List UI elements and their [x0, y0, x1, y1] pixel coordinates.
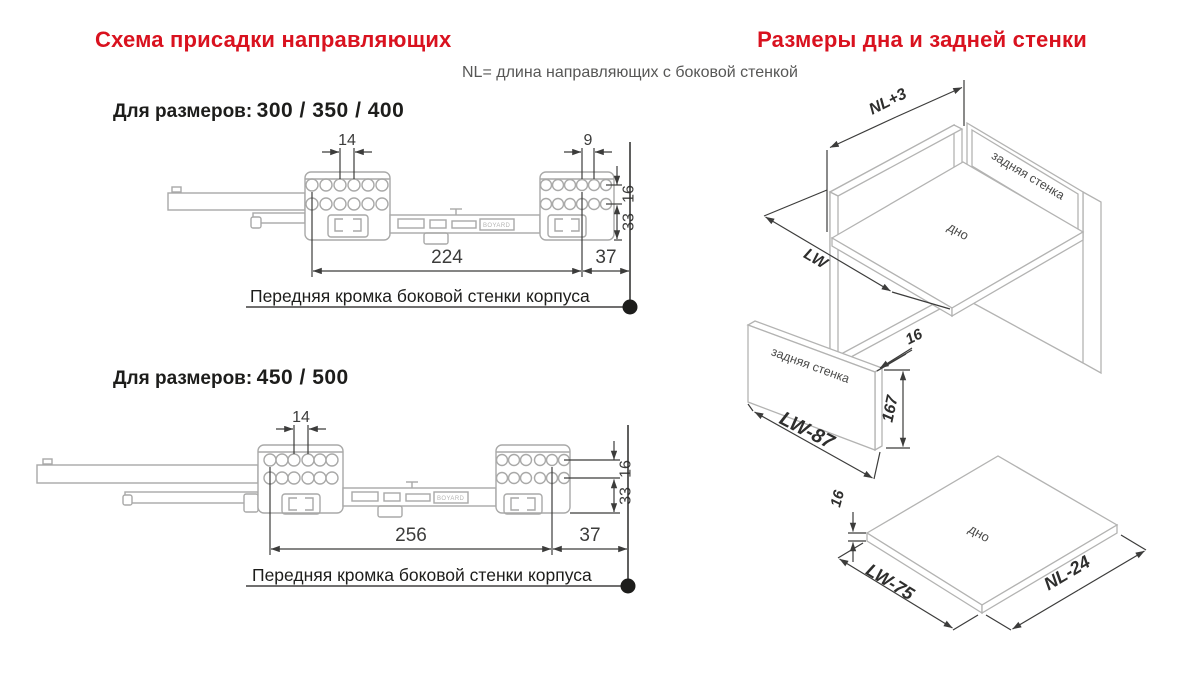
reference-dot — [623, 300, 638, 315]
front-edge-label: Передняя кромка боковой стенки корпуса — [250, 286, 590, 306]
slide-drawing-300-350-400: BOYARD — [168, 172, 614, 244]
slide-drawing-450-500: BOYARD — [37, 445, 570, 517]
dim-33: 33 — [618, 487, 635, 505]
mount-bracket-right — [496, 445, 570, 514]
dim-37: 37 — [579, 525, 600, 546]
dim-16: 16 — [618, 460, 635, 478]
rail-center-mechanism: BOYARD — [390, 209, 540, 244]
dim-9: 9 — [584, 132, 593, 149]
brand-mark: BOYARD — [437, 496, 465, 502]
rail-bar — [168, 193, 305, 210]
mount-bracket-left — [258, 445, 343, 514]
dim-14: 14 — [292, 409, 310, 426]
reference-dot — [621, 579, 636, 594]
heading-bottom-backwall-sizes: Размеры дна и задней стенки — [692, 27, 1152, 53]
rail-clip — [251, 217, 261, 228]
isometric-drawings: задняя стенка дно NL+3 LW з — [740, 80, 1200, 675]
dim-16-thickness: 16 — [903, 325, 926, 348]
slide-rail-drawings: BOYARD — [0, 0, 660, 675]
dim-14: 14 — [338, 132, 356, 149]
rail-center-mechanism: BOYARD — [343, 482, 496, 517]
rail-clip — [123, 495, 132, 505]
dim-16: 16 — [621, 185, 638, 203]
dim-256: 256 — [395, 525, 427, 546]
rail-end-hook — [172, 187, 181, 192]
bottom-panel-isometric: дно 16 LW-75 NL-24 — [827, 456, 1146, 630]
dim-167: 167 — [880, 393, 902, 424]
right-side-wall — [1083, 192, 1101, 373]
dim-33: 33 — [621, 213, 638, 231]
cabinet-isometric: задняя стенка дно NL+3 LW — [764, 80, 1101, 373]
rail-bar — [37, 465, 258, 483]
brand-mark: BOYARD — [483, 223, 511, 229]
dim-lw: LW — [801, 246, 832, 274]
mount-bracket-right — [540, 172, 614, 240]
rail-connector-box — [244, 494, 258, 512]
mount-bracket-left — [305, 172, 390, 240]
page: Схема присадки направляющих Размеры дна … — [0, 0, 1200, 675]
dim-16-thickness: 16 — [827, 488, 848, 509]
front-edge-label: Передняя кромка боковой стенки корпуса — [252, 565, 592, 585]
left-wall-front-edge — [830, 192, 838, 364]
dim-37: 37 — [595, 247, 616, 268]
rail-end-hook — [43, 459, 52, 464]
dim-224: 224 — [431, 247, 463, 268]
rail-lower-bar — [125, 492, 258, 503]
